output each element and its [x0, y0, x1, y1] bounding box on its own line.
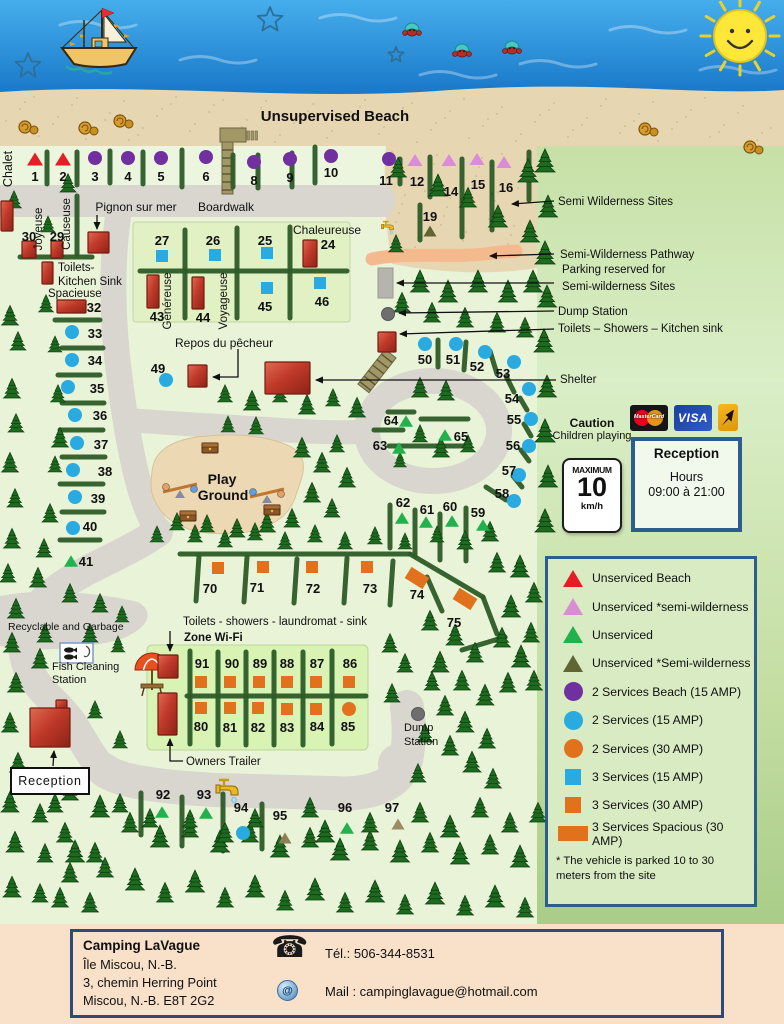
hedge [196, 556, 199, 601]
site-6-marker [199, 150, 213, 164]
site-35-number: 35 [90, 381, 104, 396]
phone-number: Tél.: 506-344-8531 [325, 946, 435, 961]
triangle-marker-icon [563, 570, 583, 587]
site-36-number: 36 [93, 408, 107, 423]
map-label-g-n-reuse: Généreuse [162, 273, 174, 330]
site-64-number: 64 [384, 413, 399, 428]
site-46-marker [314, 277, 326, 289]
map-label-causeuse: Causeuse [61, 198, 73, 250]
site-10-number: 10 [324, 165, 338, 180]
site-73-number: 73 [363, 581, 377, 596]
site-87-number: 87 [310, 656, 324, 671]
site-50-number: 50 [418, 352, 432, 367]
site-51-number: 51 [446, 352, 460, 367]
site-34-number: 34 [88, 353, 103, 368]
site-83-marker [281, 703, 293, 715]
site-45-marker [261, 282, 273, 294]
laundromat-building [158, 655, 178, 678]
interac-arrow [722, 410, 734, 426]
hedge [294, 559, 297, 603]
site-8-number: 8 [250, 173, 257, 188]
site-95-number: 95 [273, 808, 287, 823]
square-marker-icon [565, 797, 581, 813]
site-37-marker [70, 436, 84, 450]
legend-item-label: 2 Services Beach (15 AMP) [590, 685, 741, 699]
map-label-kitchen-sink: Kitchen Sink [58, 276, 122, 288]
site-8-marker [247, 155, 261, 169]
map-label-play: Play [208, 471, 237, 487]
site-44-cabin [192, 277, 204, 309]
legend-item-label: Unserviced *semi-wilderness [590, 600, 748, 614]
site-5-number: 5 [157, 169, 164, 184]
contact-box: Camping LaVague Île Miscou, N.-B. 3, che… [70, 929, 724, 1018]
camp-name: Camping LaVague [83, 938, 200, 953]
site-24-cabin [303, 240, 317, 267]
map-label-semi-wilderness-pathway: Semi-Wilderness Pathway [560, 249, 694, 261]
site-50: 50 [418, 337, 432, 367]
site-62-number: 62 [396, 495, 410, 510]
site-6-number: 6 [202, 169, 209, 184]
address-line-3: Miscou, N.-B. E8T 2G2 [83, 993, 214, 1008]
site-25-marker [261, 247, 273, 259]
speed-sign-unit: km/h [564, 501, 620, 512]
site-3-marker [88, 151, 102, 165]
visa-label: VISA [678, 411, 708, 425]
site-41-number: 41 [79, 554, 93, 569]
site-27-number: 27 [155, 233, 169, 248]
square-marker-icon [565, 769, 581, 785]
speed-sign-value: 10 [564, 475, 620, 501]
map-label-fish-cleaning: Fish Cleaning [52, 661, 119, 673]
site-27-marker [156, 250, 168, 262]
hedge [390, 561, 393, 605]
pignon-sur-mer-cabin [88, 232, 109, 253]
site-81-number: 81 [223, 720, 237, 735]
site-63-number: 63 [373, 438, 387, 453]
repos-du-pecheur-cabin [188, 365, 207, 387]
site-90-marker [224, 676, 236, 688]
email-address: Mail : campinglavague@hotmail.com [325, 984, 538, 999]
site-93-number: 93 [197, 787, 211, 802]
site-11-marker [382, 152, 396, 166]
site-80-marker [195, 702, 207, 714]
reception-hours-label: Hours [635, 470, 738, 484]
site-56-marker [522, 439, 536, 453]
site-19-number: 19 [423, 209, 437, 224]
reception-label: Reception [18, 774, 82, 788]
legend-item-label: 3 Services (30 AMP) [590, 798, 703, 812]
footer: Camping LaVague Île Miscou, N.-B. 3, che… [0, 924, 784, 1024]
site-33-number: 33 [88, 326, 102, 341]
legend-item-label: 3 Services (15 AMP) [590, 770, 703, 784]
mastercard-label: MasterCard [630, 414, 668, 420]
site-84-marker [310, 703, 322, 715]
site-82-number: 82 [251, 720, 265, 735]
site-52-marker [478, 345, 492, 359]
map-label-spacieuse: Spacieuse [48, 288, 102, 300]
site-10-marker [324, 149, 338, 163]
campground-map: 1234568910111214151619302932333435363738… [0, 0, 784, 1024]
reception-building [30, 708, 70, 747]
mastercard-icon: MasterCard [630, 405, 668, 431]
site-35-marker [61, 380, 75, 394]
site-49-number: 49 [151, 361, 165, 376]
map-label-zone-wi-fi: Zone Wi-Fi [184, 632, 243, 644]
site-38-marker [66, 463, 80, 477]
site-85-marker [342, 702, 356, 716]
map-label-dump-station: Dump Station [558, 306, 628, 318]
site-33-marker [65, 325, 79, 339]
site-58-number: 58 [495, 486, 509, 501]
site-61-number: 61 [420, 502, 434, 517]
site-82-marker [252, 702, 264, 714]
site-24-number: 24 [321, 237, 336, 252]
site-70-number: 70 [203, 581, 217, 596]
site-24: 24 [321, 237, 336, 252]
fish-cleaning-icon [60, 643, 93, 663]
site-54-marker [522, 382, 536, 396]
legend-item-label: 2 Services (15 AMP) [590, 713, 703, 727]
site-59-number: 59 [471, 505, 485, 520]
legend-items: Unserviced BeachUnserviced *semi-wildern… [548, 559, 754, 848]
reception-hours-value: 09:00 à 21:00 [635, 485, 738, 499]
map-label-voyageuse: Voyageuse [218, 273, 230, 330]
site-80-number: 80 [194, 719, 208, 734]
site-32-cabin [57, 300, 86, 313]
site-32-number: 32 [87, 300, 101, 315]
map-label-pignon-sur-mer: Pignon sur mer [95, 200, 176, 214]
legend-item-3-services-spacious-30-amp: 3 Services Spacious (30 AMP) [548, 820, 754, 848]
site-43-cabin [147, 275, 159, 308]
site-94-number: 94 [234, 800, 249, 815]
site-44-number: 44 [196, 310, 211, 325]
site-83-number: 83 [280, 720, 294, 735]
site-71-number: 71 [250, 580, 264, 595]
site-53-number: 53 [496, 366, 510, 381]
map-label-station: Station [404, 736, 438, 748]
site-5-marker [154, 151, 168, 165]
site-91-number: 91 [195, 656, 209, 671]
site-52-number: 52 [470, 359, 484, 374]
site-86-marker [343, 676, 355, 688]
legend-item-label: 3 Services Spacious (30 AMP) [590, 820, 754, 848]
legend-item-label: 2 Services (30 AMP) [590, 742, 703, 756]
legend: Unserviced BeachUnserviced *semi-wildern… [545, 556, 757, 907]
legend-item-label: Unserviced [590, 628, 653, 642]
map-label-owners-trailer: Owners Trailer [186, 756, 261, 768]
site-89-marker [253, 676, 265, 688]
legend-item-unserviced-beach: Unserviced Beach [548, 564, 754, 592]
site-81-marker [224, 702, 236, 714]
site-26-marker [209, 249, 221, 261]
map-label-joyeuse: Joyeuse [33, 208, 45, 251]
site-2-number: 2 [59, 169, 66, 184]
site-72-marker [306, 561, 318, 573]
phone-icon: ☎ [271, 930, 308, 965]
map-label-semi-wilderness-sites: Semi-wilderness Sites [562, 281, 675, 293]
legend-item-2-services-beach-15-amp: 2 Services Beach (15 AMP) [548, 678, 754, 706]
toilets-kitchen-building [42, 262, 53, 284]
site-75-number: 75 [447, 615, 461, 630]
site-94-marker [236, 826, 250, 840]
site-96-number: 96 [338, 800, 352, 815]
email-icon: @ [277, 980, 298, 1001]
site-97-number: 97 [385, 800, 399, 815]
site-57-number: 57 [502, 463, 516, 478]
site-71-marker [257, 561, 269, 573]
visa-icon: VISA [674, 405, 712, 431]
legend-note: * The vehicle is parked 10 to 30 meters … [548, 848, 754, 885]
map-label-shelter: Shelter [560, 374, 597, 386]
dump-station-icon [412, 708, 425, 721]
site-89-number: 89 [253, 656, 267, 671]
map-label-toilets: Toilets- [58, 262, 95, 274]
site-25-number: 25 [258, 233, 272, 248]
site-55-number: 55 [507, 412, 521, 427]
map-label-recyclable-and-garbage: Recyclable and Garbage [8, 621, 124, 633]
loop-access-road [128, 420, 366, 432]
circle-marker-icon [564, 682, 583, 701]
map-label-boardwalk: Boardwalk [198, 200, 255, 214]
site-10: 10 [324, 149, 338, 180]
site-37-number: 37 [94, 437, 108, 452]
triangle-marker-icon [563, 655, 583, 672]
site-51-marker [449, 337, 463, 351]
treasure-chest-icon [202, 443, 218, 453]
legend-item-2-services-30-amp: 2 Services (30 AMP) [548, 734, 754, 762]
legend-item-3-services-15-amp: 3 Services (15 AMP) [548, 763, 754, 791]
site-27: 27 [155, 233, 169, 262]
site-88-number: 88 [280, 656, 294, 671]
site-84-number: 84 [310, 719, 325, 734]
hedge [344, 558, 347, 603]
site-46-number: 46 [315, 294, 329, 309]
map-label-toilets-showers-kitchen-sink: Toilets – Showers – Kitchen sink [558, 323, 723, 335]
treasure-chest-icon [180, 511, 196, 521]
site-11-number: 11 [379, 173, 393, 188]
map-label-station: Station [52, 674, 86, 686]
site-15-number: 15 [471, 177, 485, 192]
site-39-number: 39 [91, 491, 105, 506]
site-3-number: 3 [91, 169, 98, 184]
legend-item-unserviced-semi-wilderness: Unserviced *semi-wilderness [548, 592, 754, 620]
site-72-number: 72 [306, 581, 320, 596]
site-38-number: 38 [98, 464, 112, 479]
site-1-number: 1 [31, 169, 38, 184]
legend-item-3-services-30-amp: 3 Services (30 AMP) [548, 791, 754, 819]
circle-marker-icon [564, 711, 583, 730]
site-86-number: 86 [343, 656, 357, 671]
wide-rect-marker-icon [558, 826, 588, 841]
map-label-chalet: Chalet [1, 150, 15, 187]
site-85-number: 85 [341, 719, 355, 734]
site-60-number: 60 [443, 499, 457, 514]
parking-area [378, 268, 393, 298]
toilets-showers-building [378, 332, 396, 352]
site-88-marker [281, 676, 293, 688]
triangle-marker-icon [563, 626, 583, 643]
site-91-marker [195, 676, 207, 688]
owners-trailer [158, 693, 177, 735]
site-40-number: 40 [83, 519, 97, 534]
site-50-marker [418, 337, 432, 351]
reception-label-box: Reception [10, 767, 90, 795]
map-label-toilets-showers-laundromat-sink: Toilets - showers - laundromat - sink [183, 616, 367, 628]
map-label-chaleureuse: Chaleureuse [293, 223, 361, 237]
site-12-number: 12 [410, 174, 424, 189]
interac-icon [718, 404, 738, 431]
site-92-number: 92 [156, 787, 170, 802]
site-70-marker [212, 562, 224, 574]
site-36-marker [68, 408, 82, 422]
site-9-marker [283, 152, 297, 166]
map-label-dump: Dump [404, 722, 433, 734]
address-line-1: Île Miscou, N.-B. [83, 957, 177, 972]
site-44: 44 [196, 310, 211, 325]
map-label-unsupervised-beach: Unsupervised Beach [261, 108, 409, 125]
site-14-number: 14 [444, 184, 459, 199]
map-label-repos-du-p-cheur: Repos du pêcheur [175, 336, 273, 350]
site-87-marker [310, 676, 322, 688]
site-4-number: 4 [124, 169, 132, 184]
site-54-number: 54 [505, 391, 520, 406]
site-4-marker [121, 151, 135, 165]
address-line-2: 3, chemin Herring Point [83, 975, 217, 990]
reception-panel-title: Reception [635, 446, 738, 461]
site-16-number: 16 [499, 180, 513, 195]
site-56-number: 56 [506, 438, 520, 453]
treasure-chest-icon [264, 505, 280, 515]
site-26-number: 26 [206, 233, 220, 248]
site-40-marker [66, 521, 80, 535]
site-32: 32 [87, 300, 101, 315]
hedge [464, 342, 466, 370]
legend-item-label: Unserviced Beach [590, 571, 691, 585]
site-90-number: 90 [225, 656, 239, 671]
legend-item-2-services-15-amp: 2 Services (15 AMP) [548, 706, 754, 734]
reception-hours-panel: Reception Hours 09:00 à 21:00 [631, 437, 742, 532]
site-39-marker [68, 490, 82, 504]
legend-item-unserviced-semi-wilderness: Unserviced *Semi-wilderness [548, 649, 754, 677]
site-45-number: 45 [258, 299, 272, 314]
site-34-marker [65, 353, 79, 367]
shelter-building [265, 362, 310, 394]
map-label-parking-reserved-for: Parking reserved for [562, 264, 666, 276]
speed-limit-sign: MAXIMUM 10 km/h [562, 458, 622, 533]
legend-item-unserviced: Unserviced [548, 621, 754, 649]
chalet-building [1, 201, 13, 231]
site-65-number: 65 [454, 429, 468, 444]
map-label-ground: Ground [198, 487, 249, 503]
circle-marker-icon [564, 739, 583, 758]
payment-cards: MasterCard VISA [630, 404, 738, 431]
dump-station-icon [382, 308, 395, 321]
site-73-marker [361, 561, 373, 573]
map-label-semi-wilderness-sites: Semi Wilderness Sites [558, 196, 673, 208]
hedge [244, 557, 247, 602]
legend-item-label: Unserviced *Semi-wilderness [590, 656, 751, 670]
site-9-number: 9 [286, 170, 293, 185]
site-74-number: 74 [410, 587, 425, 602]
triangle-marker-icon [563, 598, 583, 615]
